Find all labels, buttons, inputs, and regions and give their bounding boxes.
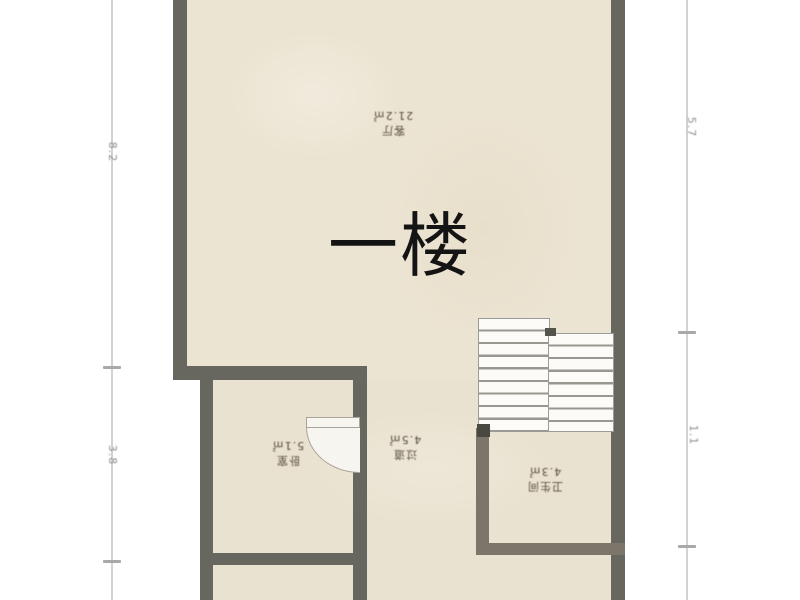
staircase-newel-post bbox=[477, 424, 490, 437]
staircase-landing-mark bbox=[545, 328, 556, 336]
room-area: 4.5㎡ bbox=[389, 432, 422, 447]
room-name: 卧室 bbox=[276, 453, 300, 468]
room-label-bedroom: 卧室 5.1㎡ bbox=[243, 438, 333, 468]
staircase-flight-left bbox=[478, 318, 550, 432]
wall-living-bottom bbox=[173, 366, 367, 380]
room-area: 5.1㎡ bbox=[272, 438, 305, 453]
dimension-tick bbox=[678, 331, 696, 334]
dimension-line-right bbox=[686, 0, 688, 600]
room-label-living: 客厅 21.2㎡ bbox=[348, 108, 438, 138]
staircase-flight-right bbox=[548, 333, 614, 432]
wall-right bbox=[611, 0, 625, 600]
dimension-tick bbox=[103, 560, 121, 563]
room-name: 卫生间 bbox=[527, 479, 563, 494]
dimension-label-right-upper: 5.7 bbox=[684, 112, 698, 142]
dimension-label-left-upper: 8.2 bbox=[105, 137, 119, 167]
dimension-tick bbox=[678, 545, 696, 548]
dimension-tick bbox=[103, 366, 121, 369]
door-leaf bbox=[306, 417, 360, 428]
wall-bathroom-left bbox=[476, 428, 489, 555]
room-name: 过道 bbox=[393, 447, 417, 462]
floor-title: 一楼 bbox=[300, 200, 500, 292]
room-label-hallway: 过道 4.5㎡ bbox=[360, 432, 450, 462]
dimension-line-left bbox=[111, 0, 113, 600]
dimension-label-left-lower: 3.8 bbox=[105, 440, 119, 470]
floor-plan: 8.2 3.8 5.7 1.1 客厅 21.2㎡ 卧室 5.1㎡ 过道 4.5㎡… bbox=[0, 0, 800, 600]
wall-bathroom-bottom bbox=[476, 543, 625, 555]
wall-left-upper bbox=[173, 0, 187, 380]
wall-left-lower bbox=[200, 380, 213, 600]
room-name: 客厅 bbox=[381, 123, 405, 138]
room-area: 21.2㎡ bbox=[373, 108, 414, 123]
room-label-bathroom: 卫生间 4.3㎡ bbox=[500, 464, 590, 494]
wall-bedroom-divider bbox=[200, 553, 367, 565]
dimension-label-right-lower: 1.1 bbox=[686, 420, 700, 450]
room-area: 4.3㎡ bbox=[529, 464, 562, 479]
